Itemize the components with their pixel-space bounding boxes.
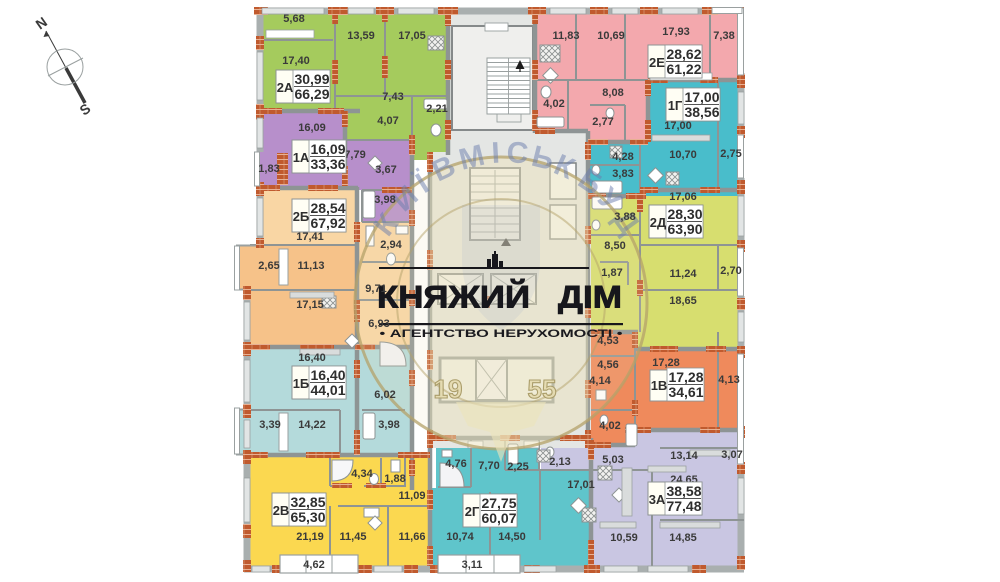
svg-text:4,76: 4,76: [445, 458, 466, 470]
svg-text:ДІМ: ДІМ: [558, 279, 622, 315]
svg-text:2,75: 2,75: [720, 148, 741, 160]
svg-text:13,59: 13,59: [347, 30, 375, 42]
svg-text:8,50: 8,50: [604, 240, 625, 252]
svg-text:1,87: 1,87: [601, 267, 622, 279]
svg-text:38,56: 38,56: [684, 104, 719, 120]
svg-text:13,14: 13,14: [670, 450, 698, 462]
svg-text:44,01: 44,01: [310, 382, 345, 398]
svg-text:17,93: 17,93: [662, 26, 690, 38]
svg-text:11,45: 11,45: [340, 531, 367, 543]
svg-text:7,43: 7,43: [382, 91, 403, 103]
svg-text:55: 55: [528, 374, 557, 404]
svg-text:7,79: 7,79: [344, 149, 365, 161]
svg-text:4,62: 4,62: [303, 559, 324, 571]
svg-text:65,30: 65,30: [290, 509, 325, 525]
svg-text:21,19: 21,19: [296, 531, 324, 543]
svg-text:3,07: 3,07: [721, 449, 742, 461]
svg-text:2,13: 2,13: [549, 456, 570, 468]
svg-text:28,30: 28,30: [667, 206, 702, 222]
svg-text:1А: 1А: [293, 150, 310, 165]
svg-text:17,01: 17,01: [567, 479, 595, 491]
svg-text:2Г: 2Г: [465, 504, 480, 519]
svg-text:7,70: 7,70: [478, 460, 499, 472]
svg-text:4,28: 4,28: [612, 151, 633, 163]
svg-text:17,41: 17,41: [296, 231, 324, 243]
svg-text:7,38: 7,38: [713, 30, 734, 42]
svg-text:С: С: [506, 136, 530, 170]
svg-text:10,69: 10,69: [597, 30, 625, 42]
svg-text:2А: 2А: [277, 80, 294, 95]
svg-text:4,56: 4,56: [597, 359, 618, 371]
svg-text:10,74: 10,74: [446, 531, 474, 543]
svg-text:3,88: 3,88: [614, 211, 635, 223]
svg-text:17,05: 17,05: [398, 30, 426, 42]
svg-text:27,75: 27,75: [481, 495, 516, 511]
svg-text:61,22: 61,22: [666, 61, 701, 77]
svg-text:3,98: 3,98: [374, 194, 395, 206]
svg-text:2,25: 2,25: [507, 461, 528, 473]
svg-text:1Б: 1Б: [293, 376, 310, 391]
svg-text:2В: 2В: [273, 503, 290, 518]
svg-text:17,28: 17,28: [652, 357, 680, 369]
svg-text:77,48: 77,48: [666, 498, 701, 514]
svg-text:1,83: 1,83: [258, 163, 279, 175]
svg-text:9,71: 9,71: [365, 283, 386, 295]
svg-text:6,93: 6,93: [368, 318, 389, 330]
svg-text:3,67: 3,67: [375, 164, 396, 176]
svg-text:4,13: 4,13: [718, 374, 739, 386]
svg-text:4,07: 4,07: [377, 115, 398, 127]
svg-text:4,53: 4,53: [597, 335, 618, 347]
svg-text:10,59: 10,59: [610, 532, 638, 544]
svg-text:8,08: 8,08: [602, 87, 623, 99]
svg-text:КНЯЖИЙ: КНЯЖИЙ: [377, 279, 530, 315]
svg-text:2Е: 2Е: [649, 55, 665, 70]
svg-text:67,92: 67,92: [310, 215, 345, 231]
svg-text:28,62: 28,62: [666, 46, 701, 62]
svg-text:3,98: 3,98: [378, 419, 399, 431]
svg-text:11,13: 11,13: [298, 260, 325, 272]
svg-text:60,07: 60,07: [481, 510, 516, 526]
svg-text:• АГЕНТСТВО НЕРУХОМОСТІ •: • АГЕНТСТВО НЕРУХОМОСТІ •: [380, 328, 623, 340]
svg-text:16,09: 16,09: [310, 141, 345, 157]
svg-text:3А: 3А: [649, 492, 666, 507]
svg-text:4,02: 4,02: [543, 98, 564, 110]
svg-text:16,40: 16,40: [310, 367, 345, 383]
svg-text:33,36: 33,36: [310, 156, 345, 172]
svg-text:3,83: 3,83: [612, 168, 633, 180]
svg-text:17,00: 17,00: [684, 89, 719, 105]
svg-text:17,28: 17,28: [668, 369, 703, 385]
svg-text:1В: 1В: [651, 378, 668, 393]
svg-text:4,34: 4,34: [351, 468, 373, 480]
svg-text:10,70: 10,70: [669, 149, 697, 161]
svg-text:63,90: 63,90: [667, 221, 702, 237]
svg-text:38,58: 38,58: [666, 483, 701, 499]
svg-text:11,09: 11,09: [399, 490, 426, 502]
svg-text:1Г: 1Г: [668, 98, 683, 113]
svg-text:11,24: 11,24: [670, 268, 698, 280]
svg-text:17,06: 17,06: [669, 191, 697, 203]
svg-text:3,11: 3,11: [462, 559, 483, 571]
svg-text:2Б: 2Б: [293, 209, 310, 224]
svg-text:17,00: 17,00: [664, 120, 692, 132]
svg-text:І: І: [491, 137, 501, 170]
svg-text:2Д: 2Д: [650, 215, 667, 230]
svg-text:14,22: 14,22: [298, 419, 326, 431]
svg-text:2,94: 2,94: [380, 239, 402, 251]
svg-text:18,65: 18,65: [669, 295, 697, 307]
svg-text:5,03: 5,03: [602, 454, 623, 466]
svg-text:16,09: 16,09: [298, 122, 326, 134]
svg-text:3,39: 3,39: [259, 419, 280, 431]
svg-text:28,54: 28,54: [310, 200, 345, 216]
svg-text:6,02: 6,02: [374, 389, 395, 401]
svg-text:11,83: 11,83: [553, 30, 580, 42]
svg-text:14,50: 14,50: [498, 531, 526, 543]
svg-text:2,65: 2,65: [258, 260, 279, 272]
svg-text:19: 19: [434, 374, 463, 404]
svg-text:2,21: 2,21: [426, 103, 447, 115]
svg-text:2,70: 2,70: [720, 265, 741, 277]
svg-text:5,68: 5,68: [283, 13, 304, 25]
svg-text:1,88: 1,88: [384, 473, 405, 485]
svg-text:4,02: 4,02: [599, 420, 620, 432]
svg-text:66,29: 66,29: [294, 86, 329, 102]
svg-text:16,40: 16,40: [298, 352, 326, 364]
svg-text:34,61: 34,61: [668, 384, 703, 400]
svg-text:14,85: 14,85: [669, 532, 697, 544]
svg-text:17,40: 17,40: [282, 55, 310, 67]
svg-text:32,85: 32,85: [290, 494, 325, 510]
svg-text:2,77: 2,77: [592, 116, 613, 128]
svg-text:11,66: 11,66: [399, 531, 426, 543]
svg-text:30,99: 30,99: [294, 71, 329, 87]
svg-text:4,14: 4,14: [589, 375, 611, 387]
svg-text:17,15: 17,15: [296, 299, 324, 311]
